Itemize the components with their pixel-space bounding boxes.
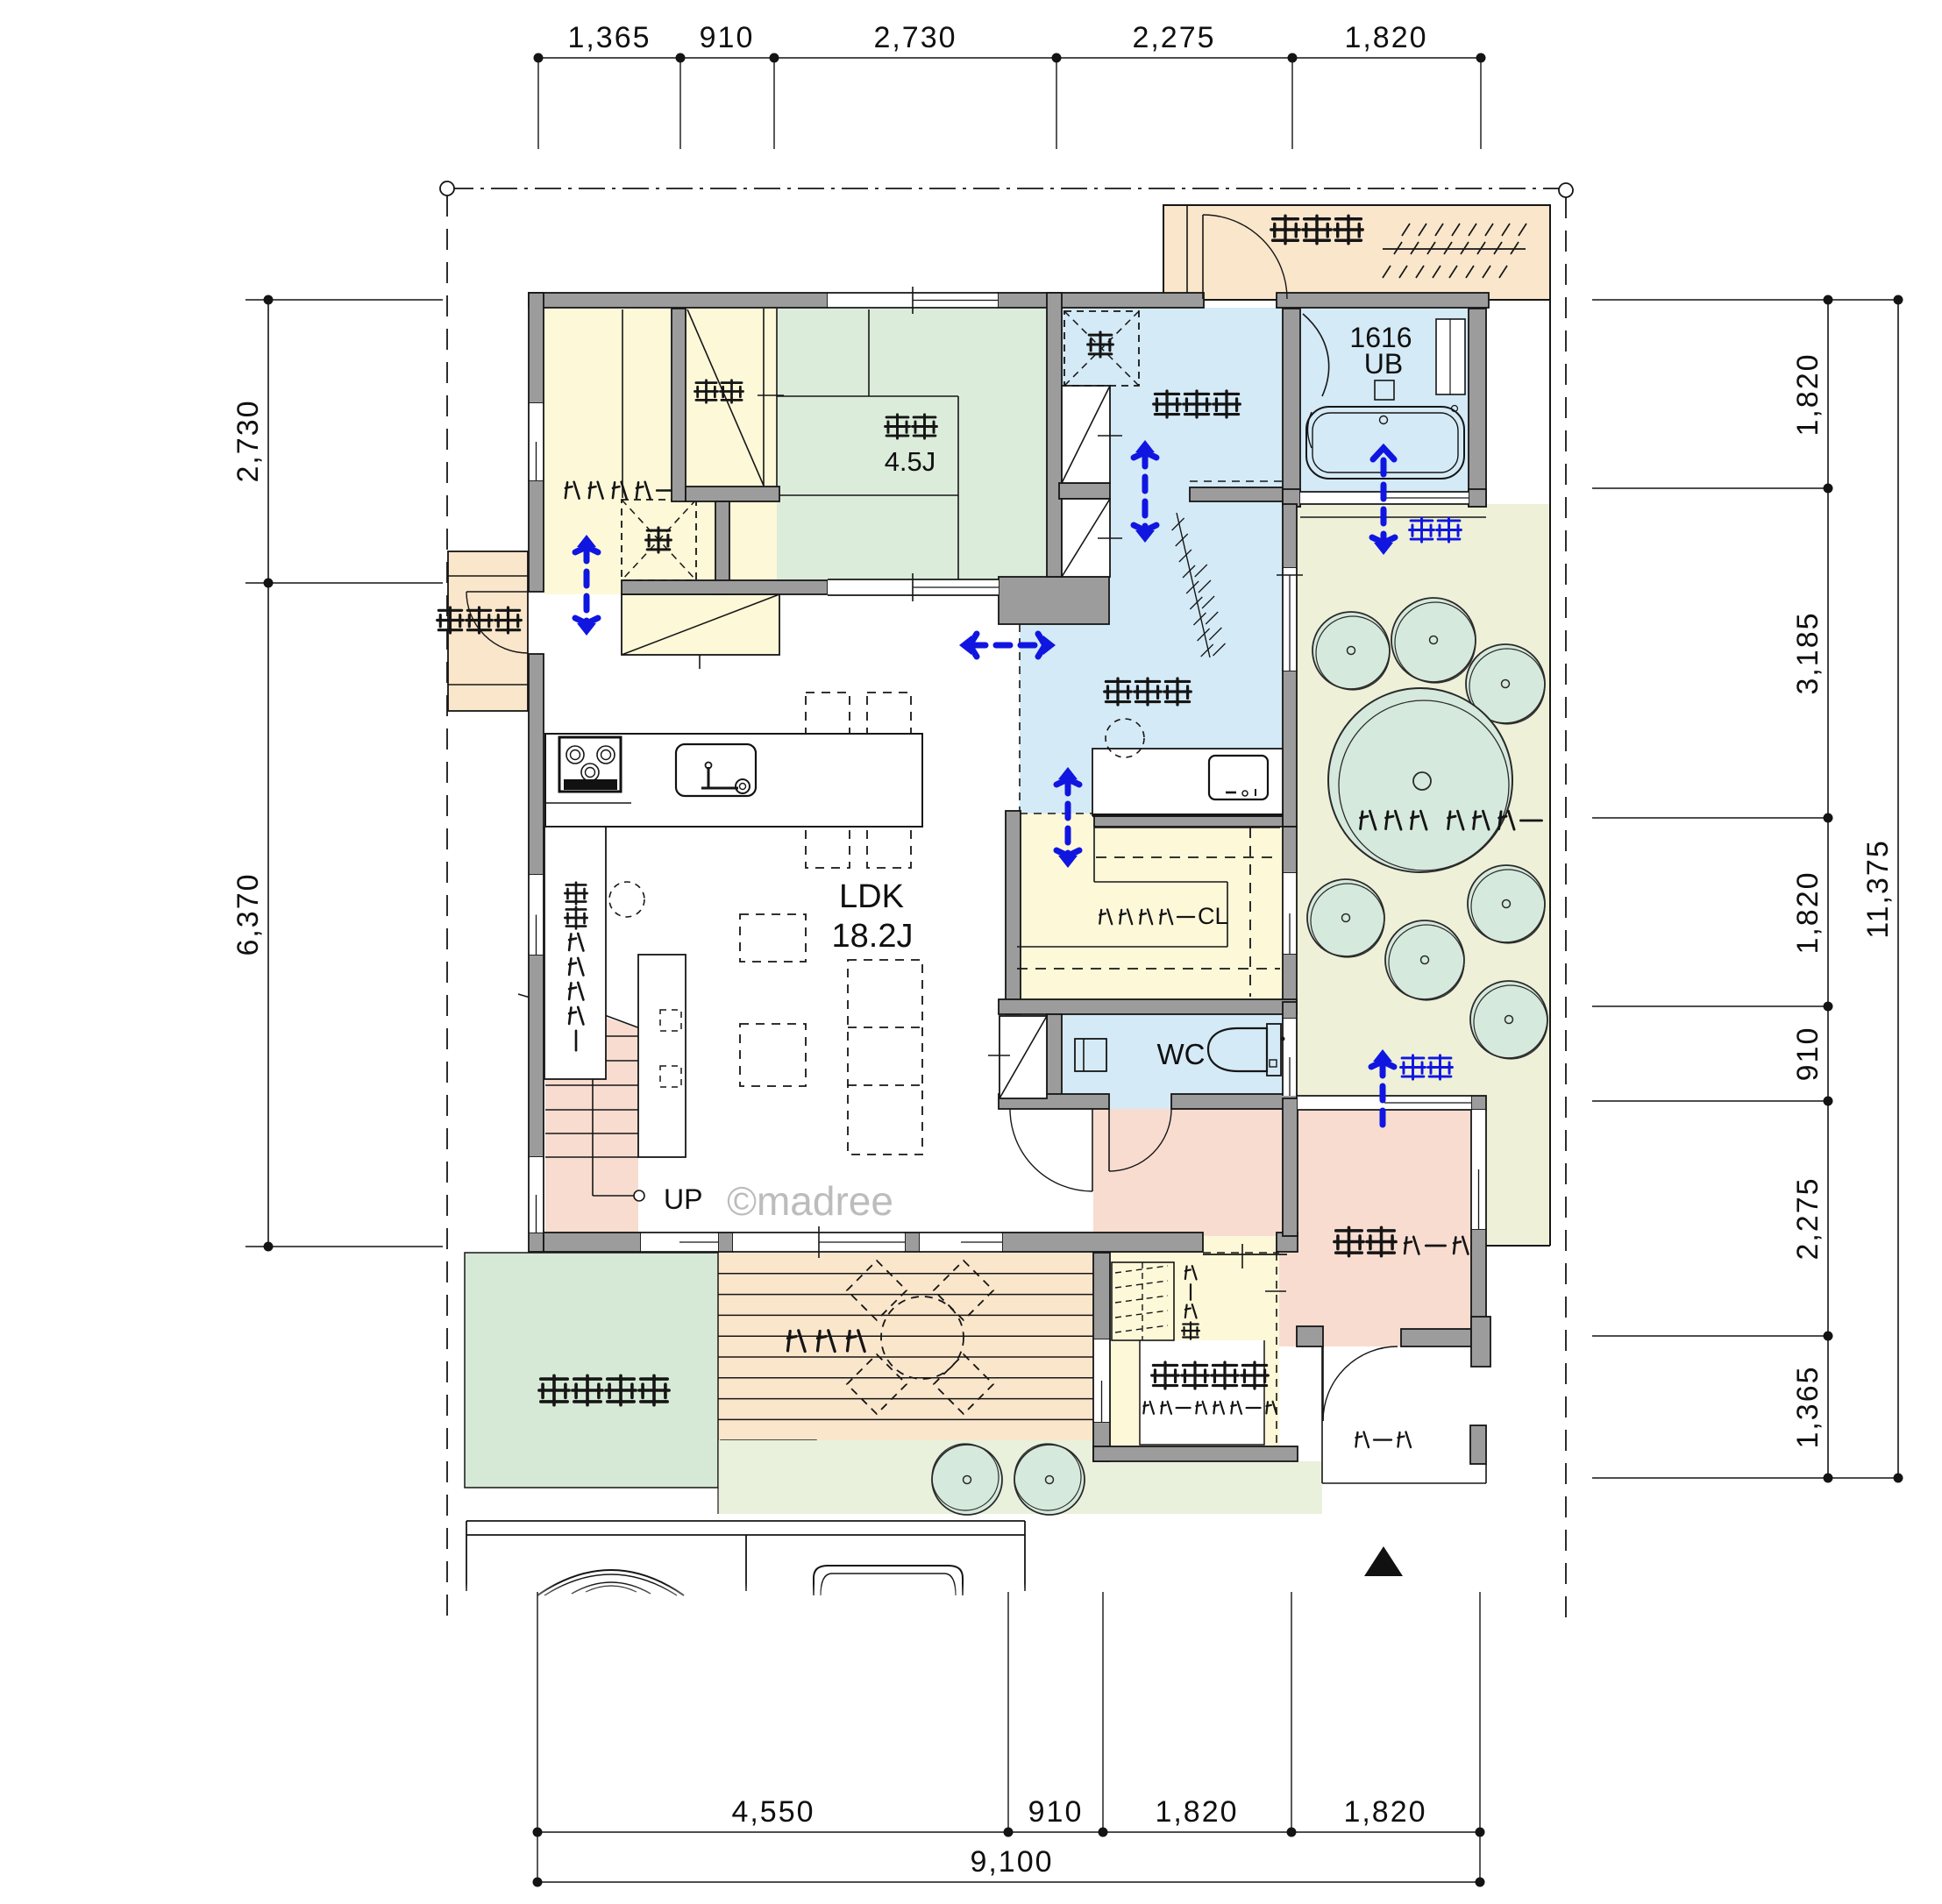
- svg-text:1,820: 1,820: [1155, 1795, 1238, 1829]
- svg-text:3,185: 3,185: [1791, 611, 1825, 694]
- svg-text:UB: UB: [1364, 348, 1403, 380]
- svg-text:UP: UP: [664, 1183, 702, 1215]
- svg-text:4.5J: 4.5J: [885, 446, 936, 477]
- svg-text:1,820: 1,820: [1343, 1795, 1426, 1829]
- svg-text:CL: CL: [1198, 903, 1228, 929]
- svg-text:2,275: 2,275: [1132, 21, 1215, 54]
- svg-text:1,365: 1,365: [1791, 1365, 1825, 1448]
- svg-text:910: 910: [1028, 1795, 1084, 1829]
- svg-text:9,100: 9,100: [970, 1845, 1053, 1879]
- svg-text:2,730: 2,730: [231, 399, 265, 482]
- svg-text:4,550: 4,550: [731, 1795, 815, 1829]
- svg-text:6,370: 6,370: [231, 872, 265, 956]
- svg-text:1,820: 1,820: [1791, 352, 1825, 436]
- svg-text:1,820: 1,820: [1344, 21, 1427, 54]
- svg-text:©madree: ©madree: [727, 1178, 893, 1224]
- svg-text:18.2J: 18.2J: [832, 918, 914, 955]
- svg-text:1,365: 1,365: [567, 21, 651, 54]
- svg-text:WC: WC: [1157, 1038, 1206, 1070]
- svg-text:11,375: 11,375: [1861, 839, 1895, 938]
- svg-text:LDK: LDK: [839, 878, 904, 915]
- svg-text:910: 910: [1791, 1027, 1825, 1082]
- svg-text:910: 910: [700, 21, 755, 54]
- svg-text:1,820: 1,820: [1791, 870, 1825, 954]
- svg-text:2,730: 2,730: [873, 21, 957, 54]
- svg-text:2,275: 2,275: [1791, 1176, 1825, 1260]
